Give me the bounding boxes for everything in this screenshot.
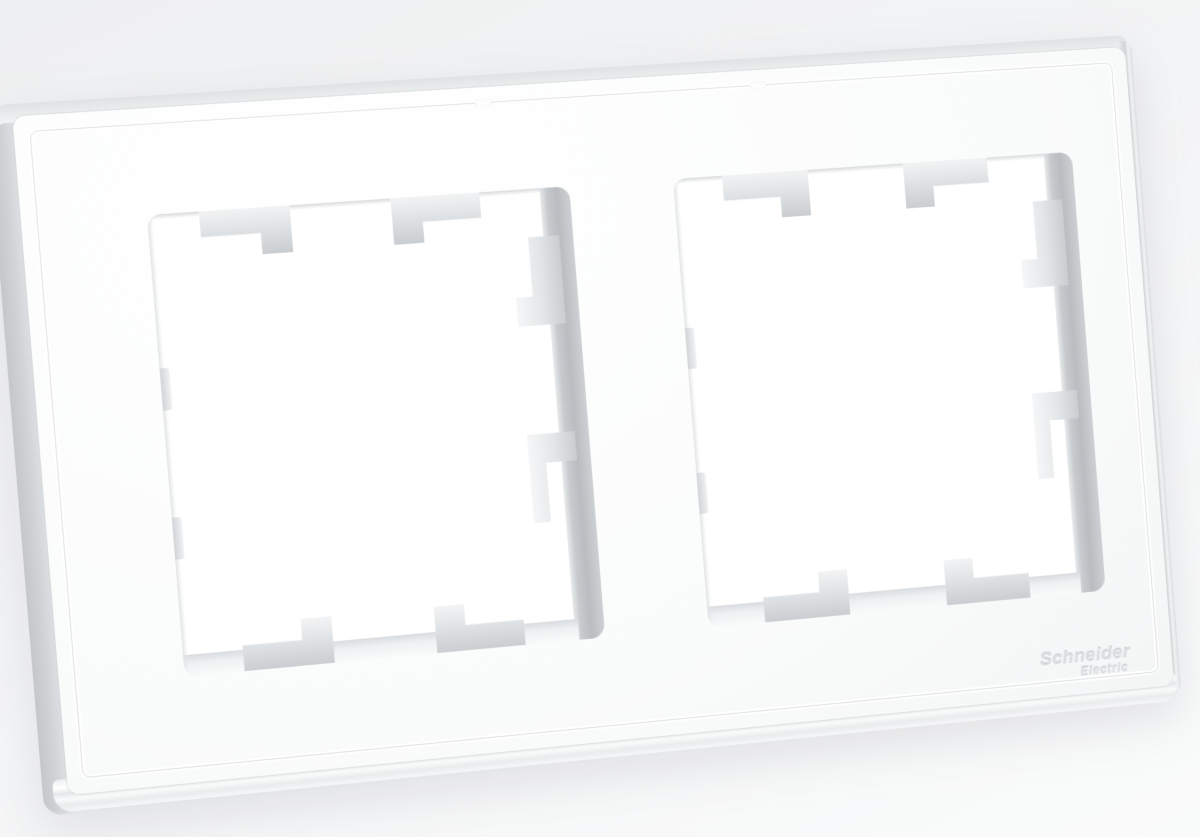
mounting-clip-top-left [722,169,811,221]
opening-right [673,152,1106,628]
mounting-clip-top-left [199,204,294,258]
opening-left [147,186,605,677]
mounting-clip-bottom-left [762,569,851,623]
mounting-clip-bottom-right [434,599,526,654]
mold-mark [750,82,766,88]
switch-frame: Schneider Electric [12,47,1174,795]
mounting-clip-bottom-right [944,553,1031,607]
mounting-stub-left-lower [696,472,708,512]
mounting-stub-left-lower [172,517,185,559]
mold-mark [475,100,491,106]
product-photo-scene: Schneider Electric [0,0,1200,837]
mounting-clip-top-right [903,157,990,209]
mounting-clip-right-upper [511,235,566,327]
mounting-stub-left-upper [159,368,172,410]
mounting-clip-bottom-left [241,616,335,672]
mounting-clip-right-upper [1017,199,1069,288]
brand-logo: Schneider Electric [1039,643,1132,682]
frame-face: Schneider Electric [12,47,1174,795]
mounting-stub-left-upper [685,327,697,367]
mounting-clip-top-right [390,191,483,245]
